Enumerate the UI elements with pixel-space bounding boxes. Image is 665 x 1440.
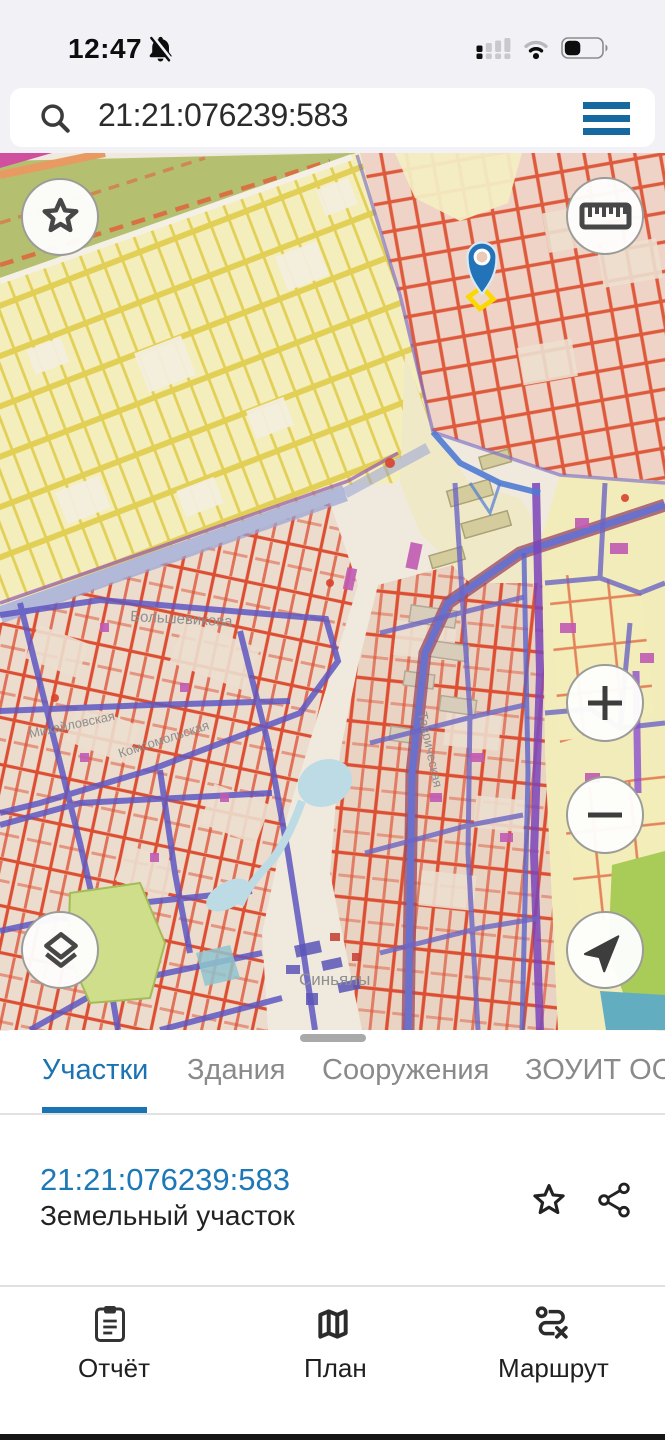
svg-text:Синьялы: Синьялы	[299, 970, 370, 989]
